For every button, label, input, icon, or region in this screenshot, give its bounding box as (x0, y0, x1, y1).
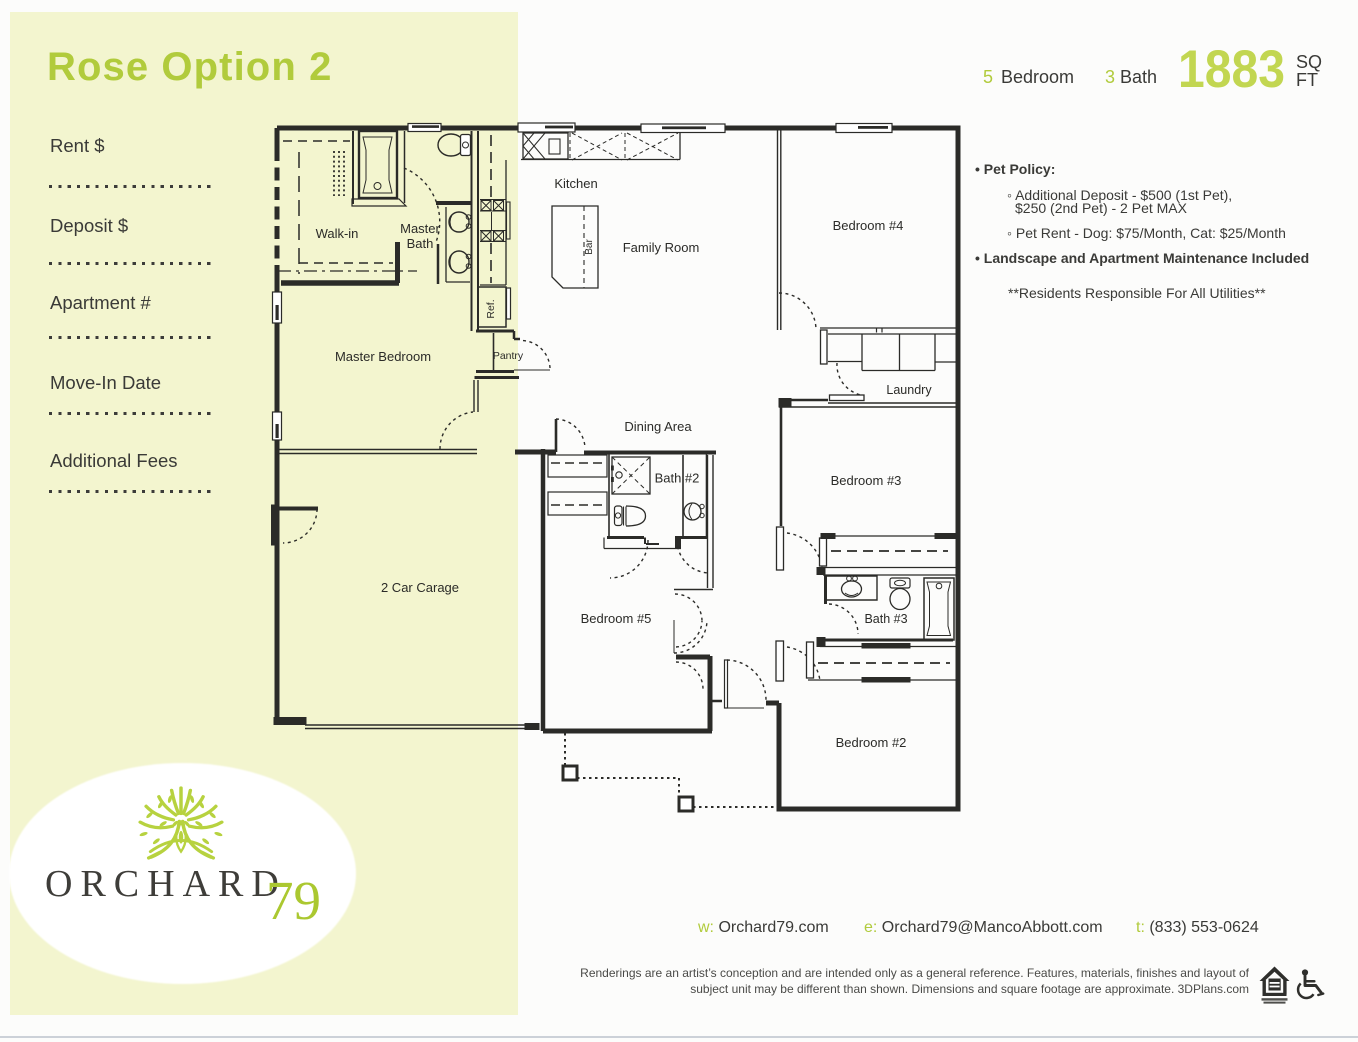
svg-text:Bedroom #3: Bedroom #3 (831, 473, 902, 488)
svg-text:Pantry: Pantry (493, 350, 524, 362)
svg-text:Bath: Bath (407, 236, 434, 251)
svg-text:Bedroom #5: Bedroom #5 (581, 611, 652, 626)
svg-text:Dining Area: Dining Area (624, 419, 692, 434)
svg-text:Family Room: Family Room (623, 240, 700, 255)
svg-text:Walk-in: Walk-in (316, 226, 359, 241)
svg-text:Bar: Bar (584, 239, 595, 255)
svg-text:Laundry: Laundry (886, 383, 932, 397)
svg-text:Bedroom #2: Bedroom #2 (836, 735, 907, 750)
svg-text:Bedroom #4: Bedroom #4 (833, 218, 904, 233)
svg-text:Master: Master (400, 221, 440, 236)
svg-text:Bath #3: Bath #3 (864, 612, 907, 626)
svg-text:Kitchen: Kitchen (554, 176, 597, 191)
svg-text:Bath #2: Bath #2 (655, 471, 700, 486)
svg-text:2 Car Carage: 2 Car Carage (381, 580, 459, 595)
svg-text:Ref.: Ref. (485, 299, 497, 318)
svg-text:Master Bedroom: Master Bedroom (335, 349, 431, 364)
